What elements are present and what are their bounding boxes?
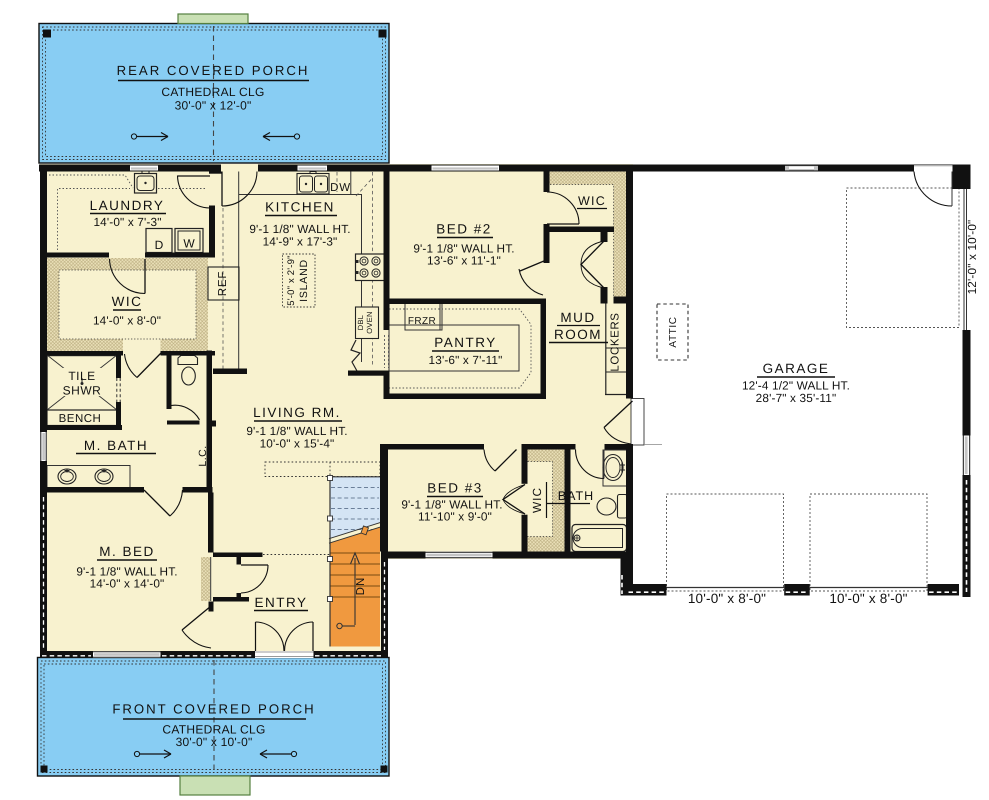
svg-text:14'-0" x 7'-3": 14'-0" x 7'-3" bbox=[93, 215, 161, 229]
svg-text:10'-0" x 8'-0": 10'-0" x 8'-0" bbox=[688, 591, 766, 606]
svg-text:10'-0" x 15'-4": 10'-0" x 15'-4" bbox=[260, 436, 335, 450]
svg-text:30'-0" x 10'-0": 30'-0" x 10'-0" bbox=[176, 735, 253, 749]
svg-text:DW: DW bbox=[330, 182, 351, 194]
svg-text:28'-7" x 35'-11": 28'-7" x 35'-11" bbox=[756, 391, 837, 405]
svg-text:OVEN: OVEN bbox=[365, 311, 374, 333]
svg-text:WIC: WIC bbox=[578, 194, 606, 208]
svg-text:10'-0" x 8'-0": 10'-0" x 8'-0" bbox=[829, 591, 907, 606]
svg-text:TILE: TILE bbox=[68, 369, 95, 383]
svg-text:DN: DN bbox=[355, 577, 367, 596]
svg-text:CATHEDRAL CLG: CATHEDRAL CLG bbox=[161, 85, 264, 99]
svg-text:ENTRY: ENTRY bbox=[254, 595, 307, 610]
svg-text:M. BATH: M. BATH bbox=[84, 438, 148, 453]
svg-text:11'-10" x 9'-0": 11'-10" x 9'-0" bbox=[418, 509, 492, 523]
svg-text:WIC: WIC bbox=[530, 487, 544, 513]
svg-text:5'-0" x 2'-9": 5'-0" x 2'-9" bbox=[286, 255, 297, 305]
svg-text:DBL: DBL bbox=[356, 315, 365, 331]
svg-text:SHWR: SHWR bbox=[63, 383, 102, 397]
svg-text:12'-0" x 10'-0": 12'-0" x 10'-0" bbox=[965, 220, 979, 295]
svg-text:KITCHEN: KITCHEN bbox=[265, 199, 335, 214]
svg-text:BATH: BATH bbox=[558, 489, 594, 503]
svg-text:LIVING RM.: LIVING RM. bbox=[253, 405, 341, 420]
svg-text:WIC: WIC bbox=[112, 294, 143, 309]
svg-text:30'-0" x 12'-0": 30'-0" x 12'-0" bbox=[175, 98, 252, 112]
svg-text:ROOM: ROOM bbox=[554, 327, 602, 342]
svg-text:D: D bbox=[155, 238, 164, 252]
svg-text:M. BED: M. BED bbox=[99, 544, 155, 559]
svg-text:ISLAND: ISLAND bbox=[298, 259, 310, 302]
svg-text:BED #2: BED #2 bbox=[436, 221, 492, 236]
svg-text:REAR COVERED PORCH: REAR COVERED PORCH bbox=[117, 63, 310, 78]
svg-text:L.C.: L.C. bbox=[197, 445, 209, 466]
svg-text:ATTIC: ATTIC bbox=[668, 316, 679, 347]
svg-text:MUD: MUD bbox=[560, 310, 595, 325]
svg-text:14'-9" x 17'-3": 14'-9" x 17'-3" bbox=[263, 234, 338, 248]
svg-text:LOCKERS: LOCKERS bbox=[610, 312, 622, 371]
svg-text:13'-6" x 7'-11": 13'-6" x 7'-11" bbox=[429, 353, 503, 367]
svg-text:FRONT COVERED PORCH: FRONT COVERED PORCH bbox=[112, 701, 315, 716]
svg-text:BENCH: BENCH bbox=[59, 413, 102, 425]
svg-text:BED #3: BED #3 bbox=[427, 480, 483, 495]
svg-text:REF: REF bbox=[217, 271, 229, 296]
svg-text:14'-0" x 14'-0": 14'-0" x 14'-0" bbox=[90, 576, 165, 590]
svg-text:13'-6" x 11'-1": 13'-6" x 11'-1" bbox=[427, 253, 501, 267]
svg-text:GARAGE: GARAGE bbox=[763, 361, 830, 376]
svg-text:PANTRY: PANTRY bbox=[434, 335, 497, 350]
svg-text:LAUNDRY: LAUNDRY bbox=[90, 198, 165, 213]
svg-text:14'-0" x 8'-0": 14'-0" x 8'-0" bbox=[93, 313, 161, 327]
svg-text:W: W bbox=[183, 236, 195, 250]
